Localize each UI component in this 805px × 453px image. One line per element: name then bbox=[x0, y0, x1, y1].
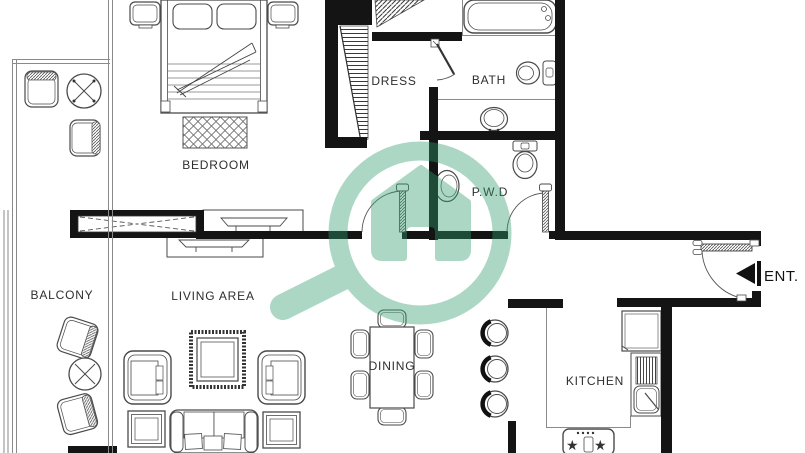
burner-star-icon: ★ bbox=[566, 438, 579, 453]
bathtub bbox=[464, 0, 556, 33]
label-dining: DINING bbox=[369, 359, 416, 373]
entrance-label: ENT. bbox=[764, 268, 799, 285]
armchair-left bbox=[124, 351, 171, 404]
armchair-right bbox=[258, 351, 305, 404]
bath-toilet bbox=[517, 61, 557, 85]
bedroom-rug bbox=[183, 117, 247, 148]
side-table-right bbox=[263, 412, 300, 448]
label-balcony: BALCONY bbox=[31, 288, 94, 302]
burner-star-icon: ★ bbox=[594, 438, 607, 453]
balcony-chair bbox=[70, 120, 100, 156]
floor-plan-canvas: ★ ★ bbox=[0, 0, 805, 453]
label-bath: BATH bbox=[472, 73, 506, 87]
sofa bbox=[170, 410, 258, 453]
tv-console-living bbox=[167, 236, 263, 257]
pwd-toilet bbox=[513, 141, 537, 179]
bath-basin bbox=[481, 108, 508, 132]
balcony-table bbox=[69, 358, 101, 390]
label-dress: DRESS bbox=[371, 74, 416, 88]
stove: ★ ★ bbox=[563, 429, 614, 453]
sliding-window bbox=[78, 216, 196, 232]
floor-plan: ★ ★ bbox=[0, 0, 805, 453]
label-kitchen: KITCHEN bbox=[566, 374, 624, 388]
nightstand-right bbox=[268, 2, 298, 28]
label-bedroom: BEDROOM bbox=[182, 158, 250, 172]
nightstand-left bbox=[130, 2, 160, 28]
bar-stools bbox=[482, 320, 508, 417]
tv-console-bedroom bbox=[203, 210, 303, 232]
label-living: LIVING AREA bbox=[171, 289, 255, 303]
balcony-chair bbox=[25, 71, 58, 107]
area-rug bbox=[191, 332, 244, 387]
double-bed bbox=[161, 0, 267, 113]
balcony-table bbox=[67, 74, 101, 108]
refrigerator bbox=[622, 311, 661, 351]
kitchen-sink bbox=[631, 353, 661, 416]
side-table-left bbox=[128, 411, 165, 447]
